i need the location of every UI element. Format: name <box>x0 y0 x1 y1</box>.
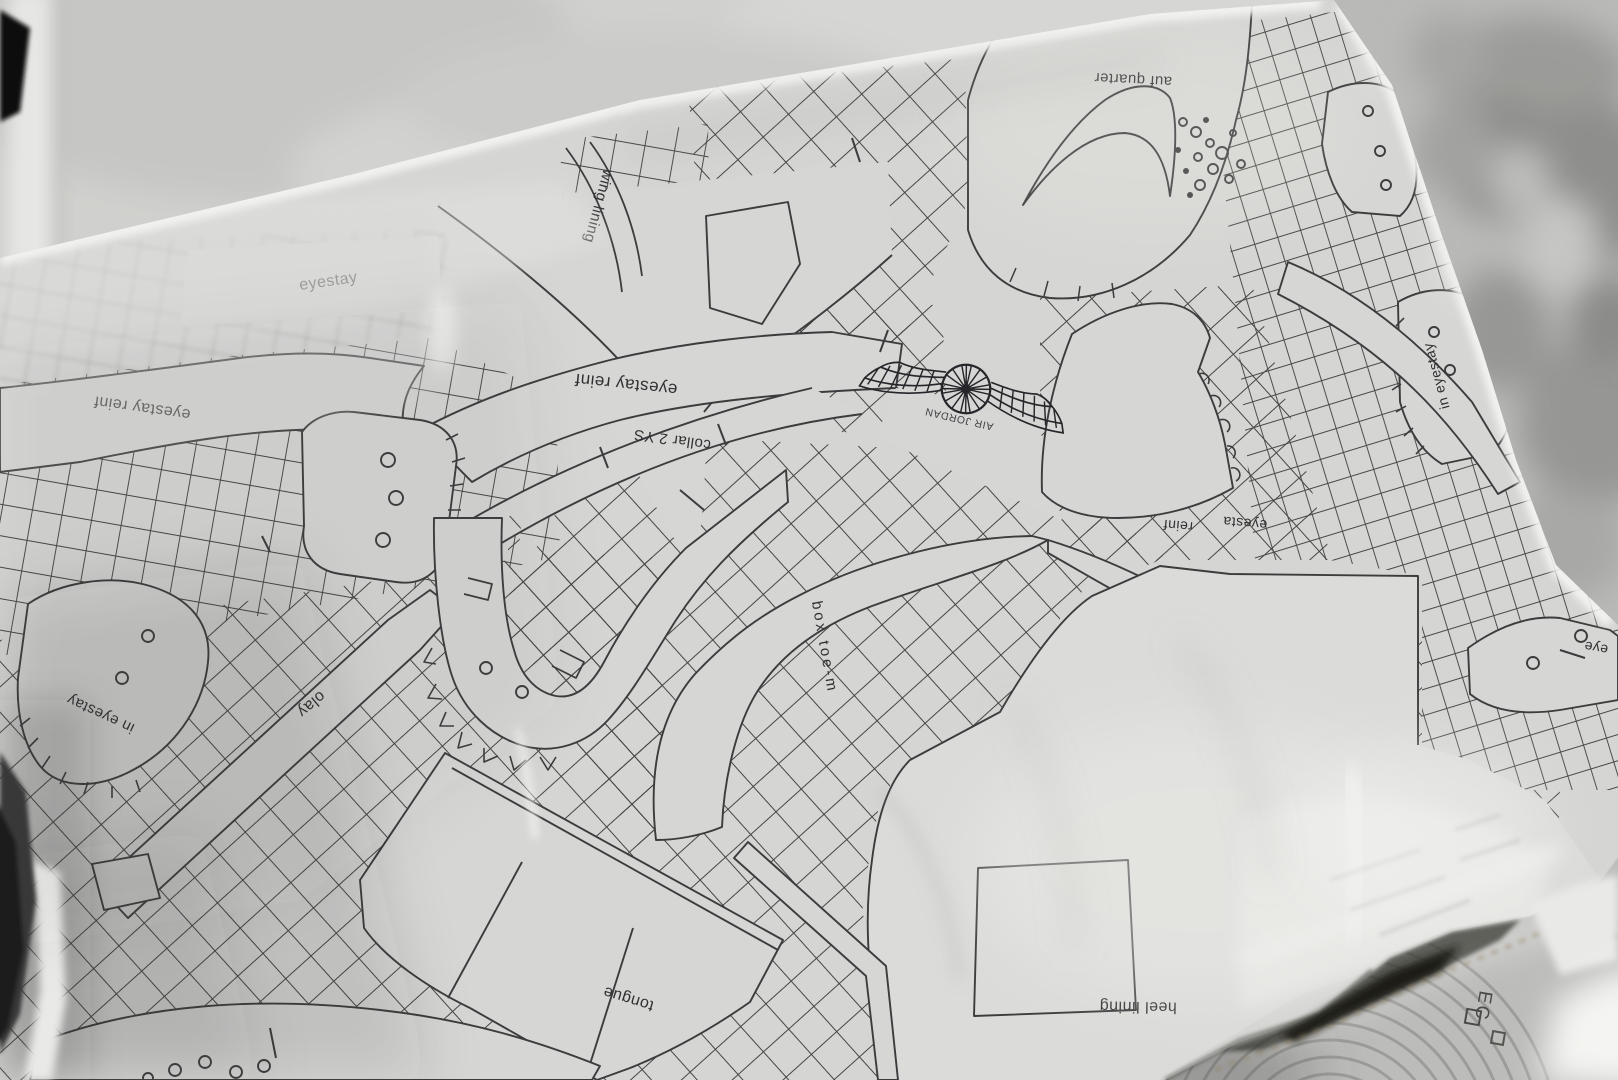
svg-text:reinf: reinf <box>1162 517 1193 536</box>
svg-text:heel lining: heel lining <box>1099 997 1177 1015</box>
